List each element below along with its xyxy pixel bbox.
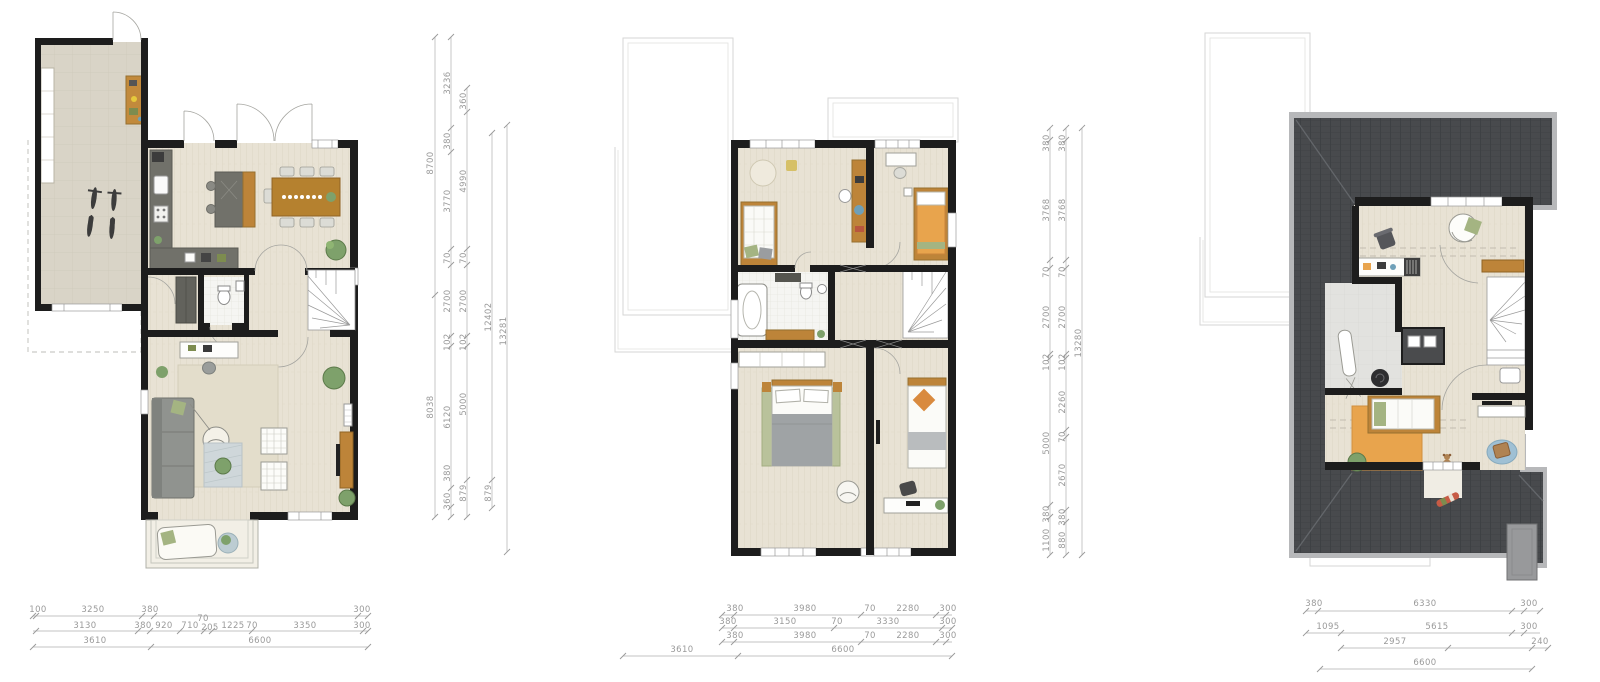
plant-icon xyxy=(339,490,355,506)
window xyxy=(761,548,816,556)
dim-label: 380 xyxy=(134,621,151,631)
bathtub xyxy=(737,284,767,336)
dim-label: 360 xyxy=(459,92,469,109)
dim-label: 3250 xyxy=(81,605,104,615)
dim-label: 879 xyxy=(484,484,494,501)
plant-icon xyxy=(154,236,162,244)
dim-label: 3350 xyxy=(293,621,316,631)
dim-label: 380 xyxy=(1305,599,1322,609)
tv-shelf xyxy=(1478,406,1525,417)
bathroom-window xyxy=(731,300,738,338)
desk xyxy=(886,153,916,166)
dim-label: 70 xyxy=(1058,266,1068,278)
dim-label: 6600 xyxy=(248,636,271,646)
dim-label: 5000 xyxy=(459,392,469,415)
dim-label: 300 xyxy=(939,604,956,614)
dim-label: 3610 xyxy=(83,636,106,646)
dim-label: 2700 xyxy=(1058,305,1068,328)
dim-label: 2280 xyxy=(896,631,919,641)
dim-label: 102 xyxy=(459,333,469,350)
dim-label: 6600 xyxy=(831,645,854,655)
dim-label: 3330 xyxy=(876,617,899,627)
grid-armchair xyxy=(261,462,287,490)
washbasin xyxy=(818,285,827,294)
nightstand xyxy=(762,382,771,392)
dim-label: 5615 xyxy=(1425,622,1448,632)
dryer-icon xyxy=(1424,336,1436,347)
double-door-swing xyxy=(237,104,312,141)
bay-window xyxy=(146,520,258,568)
plan-ground-floor: 8700 8038 3236 380 3770 70 2700 102 6120… xyxy=(28,12,510,650)
wc-icon xyxy=(218,290,230,305)
dormer-window xyxy=(1423,462,1462,470)
dims-ground-bottom: 100 3250 380 300 3130 380 920 710 70 205… xyxy=(29,605,371,650)
dim-label: 710 xyxy=(181,621,198,631)
round-rug xyxy=(750,160,776,186)
window xyxy=(875,140,920,148)
living-side-window xyxy=(141,390,148,414)
desk-shelf xyxy=(1404,258,1420,276)
grid-armchair xyxy=(261,428,287,454)
nightstand xyxy=(833,382,842,392)
desk-chair xyxy=(839,190,851,203)
dim-label: 70 xyxy=(864,604,876,614)
dims-attic-bottom: 380 6330 300 1095 5615 300 2957 240 6600 xyxy=(1303,599,1551,672)
dim-label: 380 xyxy=(726,631,743,641)
dim-label: 6330 xyxy=(1413,599,1436,609)
blue-rug xyxy=(204,443,242,487)
dim-label: 70 xyxy=(1042,266,1052,278)
dim-label: 300 xyxy=(353,605,370,615)
dim-label: 70 xyxy=(1058,431,1068,443)
dim-label: 3770 xyxy=(443,189,453,212)
dim-label: 2957 xyxy=(1383,637,1406,647)
dim-label: 1100 xyxy=(1042,528,1052,551)
dim-label: 6600 xyxy=(1413,658,1436,668)
bed-headboard xyxy=(908,378,946,386)
plant-icon xyxy=(326,240,346,260)
dim-label: 102 xyxy=(1042,353,1052,370)
dim-label: 3236 xyxy=(443,71,453,94)
toilet-sink xyxy=(236,281,244,291)
dims-first-vertical: 380 3768 70 2700 102 5000 380 1100 380 3… xyxy=(1042,125,1085,558)
dim-label: 12402 xyxy=(484,302,494,331)
dim-label: 205 xyxy=(201,623,218,633)
chair xyxy=(1500,368,1520,383)
dims-ground-vertical: 8700 8038 3236 380 3770 70 2700 102 6120… xyxy=(426,34,510,555)
bath-shelf xyxy=(775,273,801,282)
pillow xyxy=(1374,402,1386,426)
dim-label: 2700 xyxy=(1042,305,1052,328)
dim-label: 300 xyxy=(1520,622,1537,632)
dim-label: 70 xyxy=(246,621,258,631)
dim-label: 920 xyxy=(155,621,172,631)
dim-label: 300 xyxy=(353,621,370,631)
dim-label: 4990 xyxy=(459,169,469,192)
dim-label: 380 xyxy=(719,617,736,627)
tv-cabinet xyxy=(340,432,353,488)
dim-label: 2670 xyxy=(1058,463,1068,486)
dim-label: 3768 xyxy=(1058,198,1068,221)
plan-attic: 380 6330 300 1095 5615 300 2957 240 6600 xyxy=(1200,33,1557,672)
dim-label: 3768 xyxy=(1042,198,1052,221)
dim-label: 3980 xyxy=(793,604,816,614)
dim-label: 100 xyxy=(29,605,46,615)
garage-door-swing xyxy=(113,12,141,40)
kitchen-window xyxy=(312,140,338,148)
dim-label: 8038 xyxy=(426,395,436,418)
dim-label: 380 xyxy=(1058,508,1068,525)
dim-label: 3150 xyxy=(773,617,796,627)
window xyxy=(731,363,738,389)
plan-first-floor: 380 3768 70 2700 102 5000 380 1100 380 3… xyxy=(615,38,1085,659)
dim-label: 380 xyxy=(141,605,158,615)
window xyxy=(750,140,815,148)
living-rear-window xyxy=(288,512,332,520)
floor-plan-sheet: 8700 8038 3236 380 3770 70 2700 102 6120… xyxy=(0,0,1600,682)
dim-label: 1095 xyxy=(1316,622,1339,632)
bench xyxy=(1482,260,1524,272)
dim-label: 3980 xyxy=(793,631,816,641)
dim-label: 13281 xyxy=(499,316,509,345)
window xyxy=(948,213,956,247)
dim-label: 380 xyxy=(443,464,453,481)
dim-label: 70 xyxy=(864,631,876,641)
dim-label: 6120 xyxy=(443,405,453,428)
dim-label: 70 xyxy=(459,252,469,264)
garage-window xyxy=(52,304,122,311)
desk-chair xyxy=(894,168,906,179)
garage-room xyxy=(35,12,148,311)
tv-icon xyxy=(876,420,880,444)
dim-label: 2260 xyxy=(1058,390,1068,413)
dim-label: 300 xyxy=(939,617,956,627)
dim-label: 380 xyxy=(1042,134,1052,151)
dim-label: 3130 xyxy=(73,621,96,631)
dim-label: 102 xyxy=(443,333,453,350)
dim-label: 380 xyxy=(1042,505,1052,522)
dim-label: 13280 xyxy=(1074,328,1084,357)
dormer-window xyxy=(1431,197,1502,206)
tv-icon xyxy=(336,444,340,476)
dim-label: 360 xyxy=(443,492,453,509)
staircase xyxy=(308,270,355,330)
dim-label: 1225 xyxy=(221,621,244,631)
dim-label: 2280 xyxy=(896,604,919,614)
radiator xyxy=(344,404,352,426)
staircase xyxy=(903,270,948,338)
laundry-floor xyxy=(1325,283,1402,395)
washing-machine-icon xyxy=(1408,336,1420,347)
chaise-longue xyxy=(157,524,217,560)
pouf xyxy=(786,160,797,171)
dim-label: 300 xyxy=(939,631,956,641)
dim-label: 5000 xyxy=(1042,431,1052,454)
armchair xyxy=(837,481,859,503)
dim-label: 380 xyxy=(443,132,453,149)
dim-label: 879 xyxy=(459,484,469,501)
plant-icon xyxy=(935,500,945,510)
dim-label: 102 xyxy=(1058,353,1068,370)
bed-headboard xyxy=(772,380,832,386)
drawing-canvas: 8700 8038 3236 380 3770 70 2700 102 6120… xyxy=(0,0,1600,682)
bath-bench xyxy=(766,330,814,340)
dim-label: 2700 xyxy=(443,289,453,312)
ground-front-wall xyxy=(145,104,358,148)
dim-label: 3610 xyxy=(670,645,693,655)
dim-label: 240 xyxy=(1531,637,1548,647)
dim-label: 2700 xyxy=(459,289,469,312)
dims-first-bottom: 380 3980 70 2280 300 380 3150 70 3330 30… xyxy=(620,604,957,659)
dim-label: 8700 xyxy=(426,151,436,174)
plant-icon xyxy=(817,330,825,338)
dim-label: 300 xyxy=(1520,599,1537,609)
dim-label: 380 xyxy=(1058,134,1068,151)
dim-label: 880 xyxy=(1058,531,1068,548)
fan-icon xyxy=(1371,369,1389,387)
sofa xyxy=(152,398,194,498)
tv-icon xyxy=(1482,401,1512,405)
garage-shelf xyxy=(41,68,54,183)
dim-label: 70 xyxy=(831,617,843,627)
dim-label: 70 xyxy=(443,252,453,264)
dim-label: 380 xyxy=(726,604,743,614)
plant-icon xyxy=(323,367,345,389)
kitchen-sink xyxy=(154,176,168,194)
